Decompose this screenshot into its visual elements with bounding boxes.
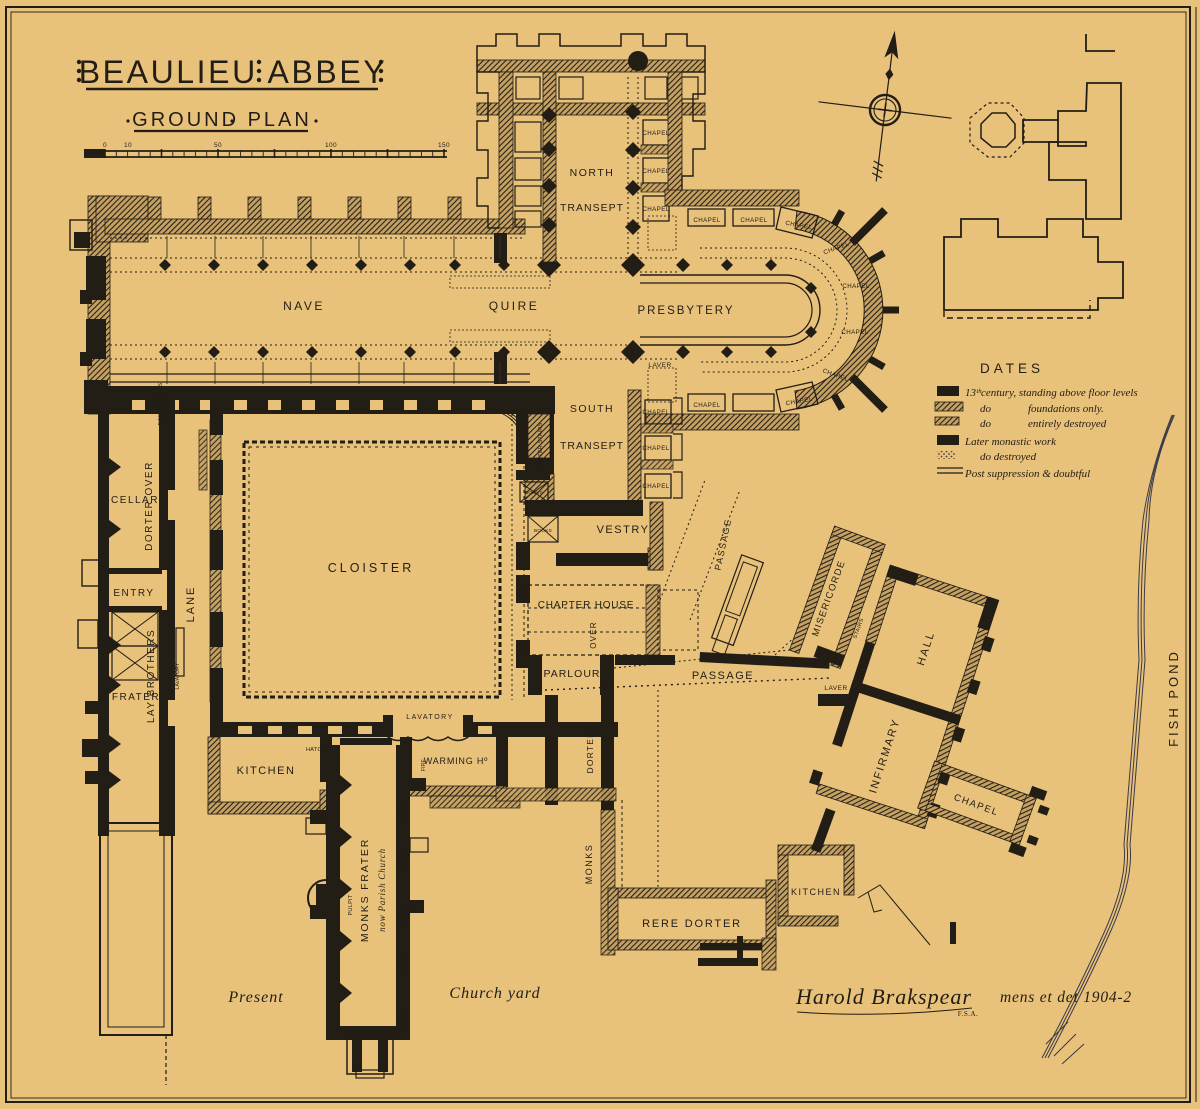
svg-text:PARLOUR: PARLOUR — [544, 668, 601, 680]
svg-text:DORTER: DORTER — [585, 731, 595, 774]
svg-text:Present: Present — [227, 989, 283, 1006]
svg-text:CHAPEL: CHAPEL — [642, 445, 669, 452]
svg-text:CHAPEL: CHAPEL — [642, 168, 669, 175]
svg-text:10: 10 — [124, 142, 132, 149]
svg-text:CHAPEL: CHAPEL — [642, 483, 669, 490]
svg-text:KITCHEN: KITCHEN — [237, 765, 296, 777]
svg-text:CHAPEL: CHAPEL — [642, 206, 669, 213]
svg-text:GROUND PLAN: GROUND PLAN — [132, 109, 312, 131]
svg-text:TRANSEPT: TRANSEPT — [560, 202, 624, 214]
svg-text:mens et det 1904-2: mens et det 1904-2 — [1000, 989, 1132, 1006]
svg-text:MONKS FRATER: MONKS FRATER — [359, 838, 371, 942]
svg-text:ENTRY: ENTRY — [113, 588, 154, 599]
svg-text:MONKS: MONKS — [584, 844, 594, 885]
svg-text:100: 100 — [325, 142, 337, 149]
svg-text:CHAPEL: CHAPEL — [842, 283, 869, 290]
svg-text:LAY BROTHERS: LAY BROTHERS — [146, 629, 157, 723]
svg-text:HATCH: HATCH — [306, 747, 326, 753]
svg-text:CHAPEL: CHAPEL — [642, 130, 669, 137]
svg-text:0: 0 — [103, 142, 107, 149]
svg-text:KITCHEN: KITCHEN — [791, 887, 841, 897]
svg-text:LANE: LANE — [185, 586, 197, 623]
svg-text:CHAPEL: CHAPEL — [693, 217, 720, 224]
svg-text:RERE DORTER: RERE DORTER — [642, 918, 742, 930]
svg-text:50: 50 — [214, 142, 222, 149]
svg-text:FIRE: FIRE — [421, 758, 427, 771]
svg-text:LAVER: LAVER — [648, 362, 671, 369]
svg-text:LAVATORY: LAVATORY — [175, 662, 181, 689]
svg-text:FRATER: FRATER — [112, 692, 160, 703]
svg-text:Harold Brakspear: Harold Brakspear — [795, 984, 972, 1009]
svg-text:Church yard: Church yard — [449, 985, 540, 1002]
svg-text:DORTER OVER: DORTER OVER — [144, 461, 155, 551]
svg-text:CHAPEL: CHAPEL — [841, 329, 868, 336]
svg-text:CHAPTER HOUSE: CHAPTER HOUSE — [538, 600, 635, 611]
svg-text:NAVE: NAVE — [283, 299, 325, 313]
svg-text:13ᵗʰcentury, standing above fl: 13ᵗʰcentury, standing above floor levels — [965, 387, 1138, 399]
svg-text:PULPIT: PULPIT — [348, 894, 354, 915]
svg-text:LAVATORY: LAVATORY — [406, 714, 454, 721]
svg-text:DORTER STAIRS: DORTER STAIRS — [538, 423, 544, 470]
svg-text:PRESBYTERY: PRESBYTERY — [637, 305, 734, 317]
svg-text:BEAULIEU ABBEY: BEAULIEU ABBEY — [79, 54, 388, 90]
svg-text:CHAPEL: CHAPEL — [693, 402, 720, 409]
svg-text:entirely destroyed: entirely destroyed — [1028, 418, 1107, 430]
svg-text:CLOISTER: CLOISTER — [328, 561, 415, 575]
svg-text:F.S.A.: F.S.A. — [958, 1010, 979, 1018]
svg-text:do: do — [980, 403, 992, 415]
svg-text:NORTH: NORTH — [570, 167, 615, 179]
svg-text:BOOKS: BOOKS — [525, 490, 543, 496]
svg-text:CHAPEL: CHAPEL — [740, 217, 767, 224]
svg-text:OVER: OVER — [589, 621, 598, 648]
svg-text:DATES: DATES — [980, 361, 1044, 376]
svg-text:Later monastic work: Later monastic work — [964, 436, 1057, 448]
svg-text:QUIRE: QUIRE — [489, 299, 540, 313]
svg-text:Post suppression & doubtful: Post suppression & doubtful — [964, 468, 1090, 480]
svg-text:DORTER STAIRS: DORTER STAIRS — [158, 382, 164, 425]
svg-text:now Parish Church: now Parish Church — [377, 848, 387, 932]
svg-text:PASSAGE: PASSAGE — [692, 670, 754, 682]
svg-text:WARMING Hº: WARMING Hº — [424, 756, 488, 766]
svg-text:foundations only.: foundations only. — [1028, 403, 1104, 415]
svg-text:VESTRY: VESTRY — [597, 524, 650, 536]
svg-text:FISH POND: FISH POND — [1166, 649, 1181, 747]
svg-text:do: do — [980, 418, 992, 430]
svg-text:CHAPEL: CHAPEL — [642, 409, 669, 416]
svg-text:BOOKS: BOOKS — [534, 528, 552, 534]
svg-text:LAVER: LAVER — [824, 685, 847, 692]
svg-text:do destroyed: do destroyed — [980, 451, 1037, 463]
svg-text:SOUTH: SOUTH — [570, 403, 614, 415]
svg-text:TRANSEPT: TRANSEPT — [560, 440, 624, 452]
svg-text:150: 150 — [438, 142, 450, 149]
